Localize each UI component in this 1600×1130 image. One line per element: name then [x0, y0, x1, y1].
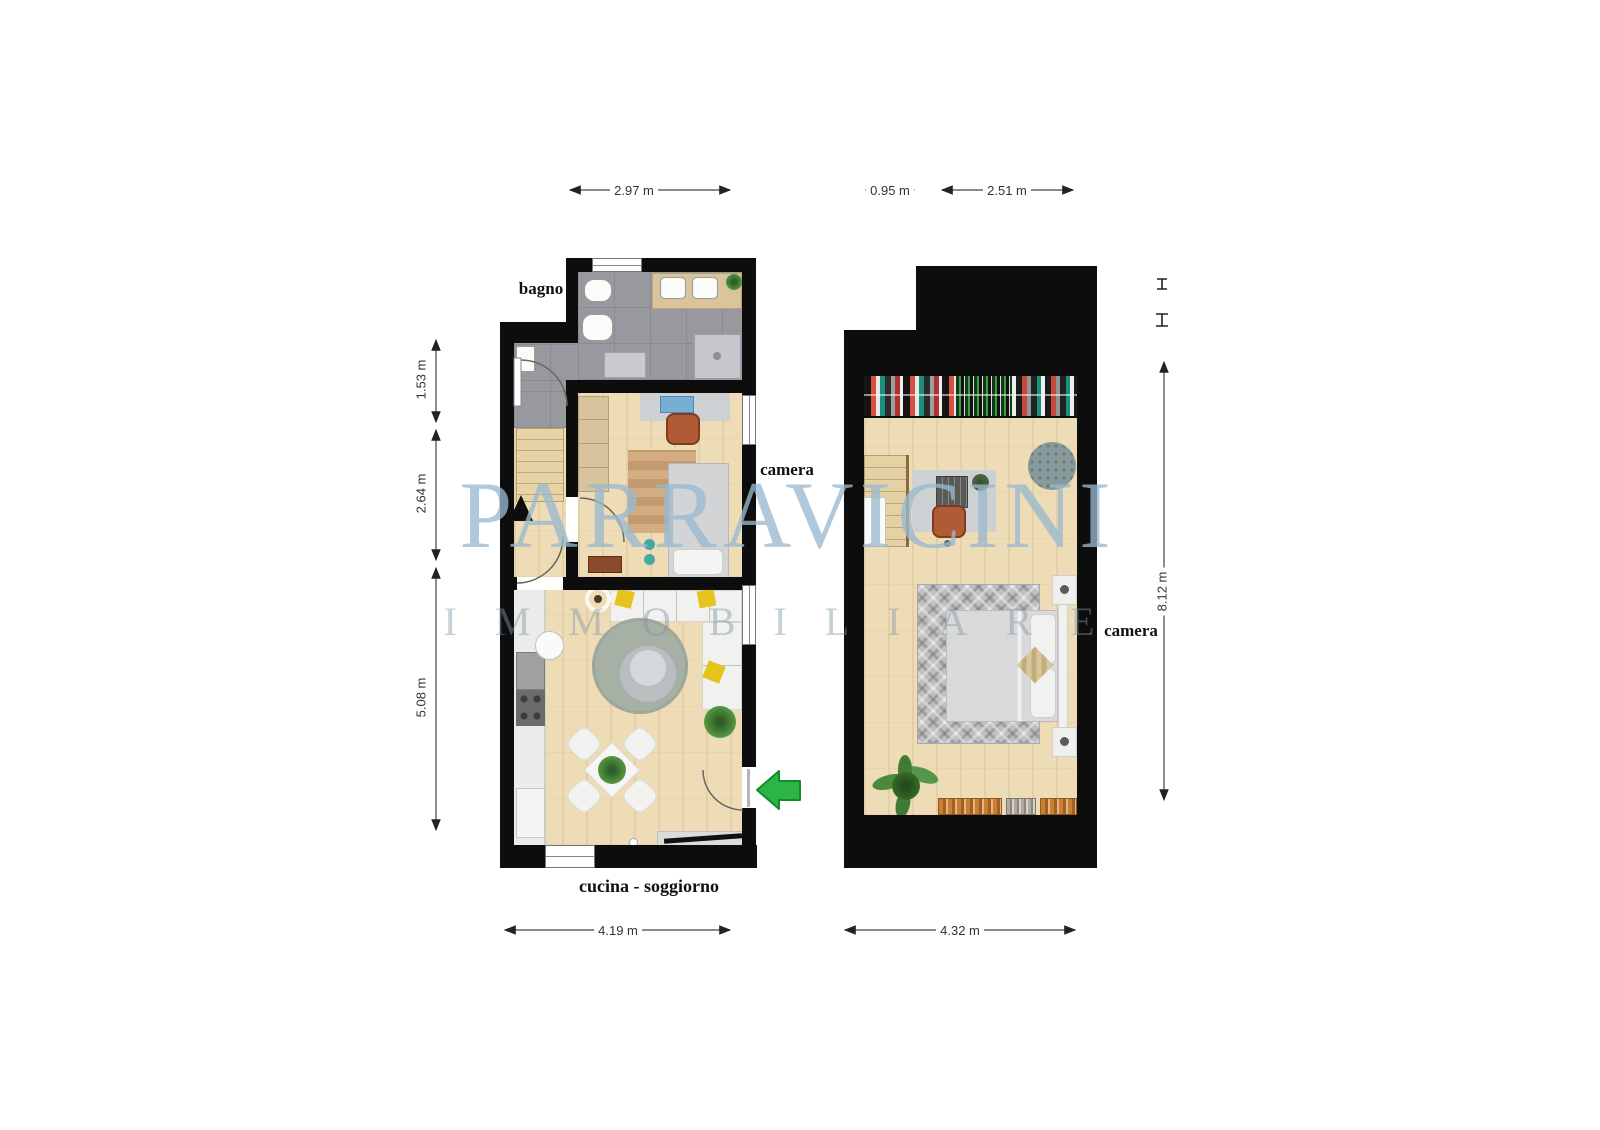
dimension-value: 8.12 m	[1155, 568, 1170, 616]
dimension-value: 4.32 m	[936, 923, 984, 938]
dimension-label-side-middle: 2.64 m	[414, 464, 429, 524]
floorplan-canvas: bagno camera cucina - soggiorno camera 2…	[0, 0, 1600, 1130]
dimension-label-top-right-plan-b: 2.51 m	[977, 183, 1037, 198]
dimension-label-bottom-right-plan: 4.32 m	[930, 923, 990, 938]
dimension-label-side-lower: 5.08 m	[414, 668, 429, 728]
dimension-label-bottom-left-plan: 4.19 m	[588, 923, 648, 938]
dimension-value: 2.51 m	[983, 183, 1031, 198]
door-arc	[517, 360, 743, 810]
annotation-overlay	[0, 0, 1600, 1130]
room-label-camera-ground: camera	[742, 460, 832, 480]
dimension-lines	[436, 190, 1164, 930]
room-label-camera-upper: camera	[1086, 621, 1176, 641]
stairs-direction-icon	[509, 495, 533, 521]
dimension-label-top-left-plan: 2.97 m	[604, 183, 664, 198]
dimension-label-top-right-plan-a: 0.95 m	[860, 183, 920, 198]
room-label-cucina-soggiorno: cucina - soggiorno	[549, 876, 749, 897]
dimension-value: 4.19 m	[594, 923, 642, 938]
door-leaf	[514, 358, 521, 406]
room-label-bagno: bagno	[496, 279, 586, 299]
dimension-label-side-height-right-plan: 8.12 m	[1155, 562, 1170, 622]
dimension-value: 0.95 m	[866, 183, 914, 198]
dimension-value: 2.97 m	[610, 183, 658, 198]
small-dimension-marker	[1156, 279, 1168, 326]
dimension-label-side-upper: 1.53 m	[414, 350, 429, 410]
entry-arrow-icon	[757, 771, 800, 809]
